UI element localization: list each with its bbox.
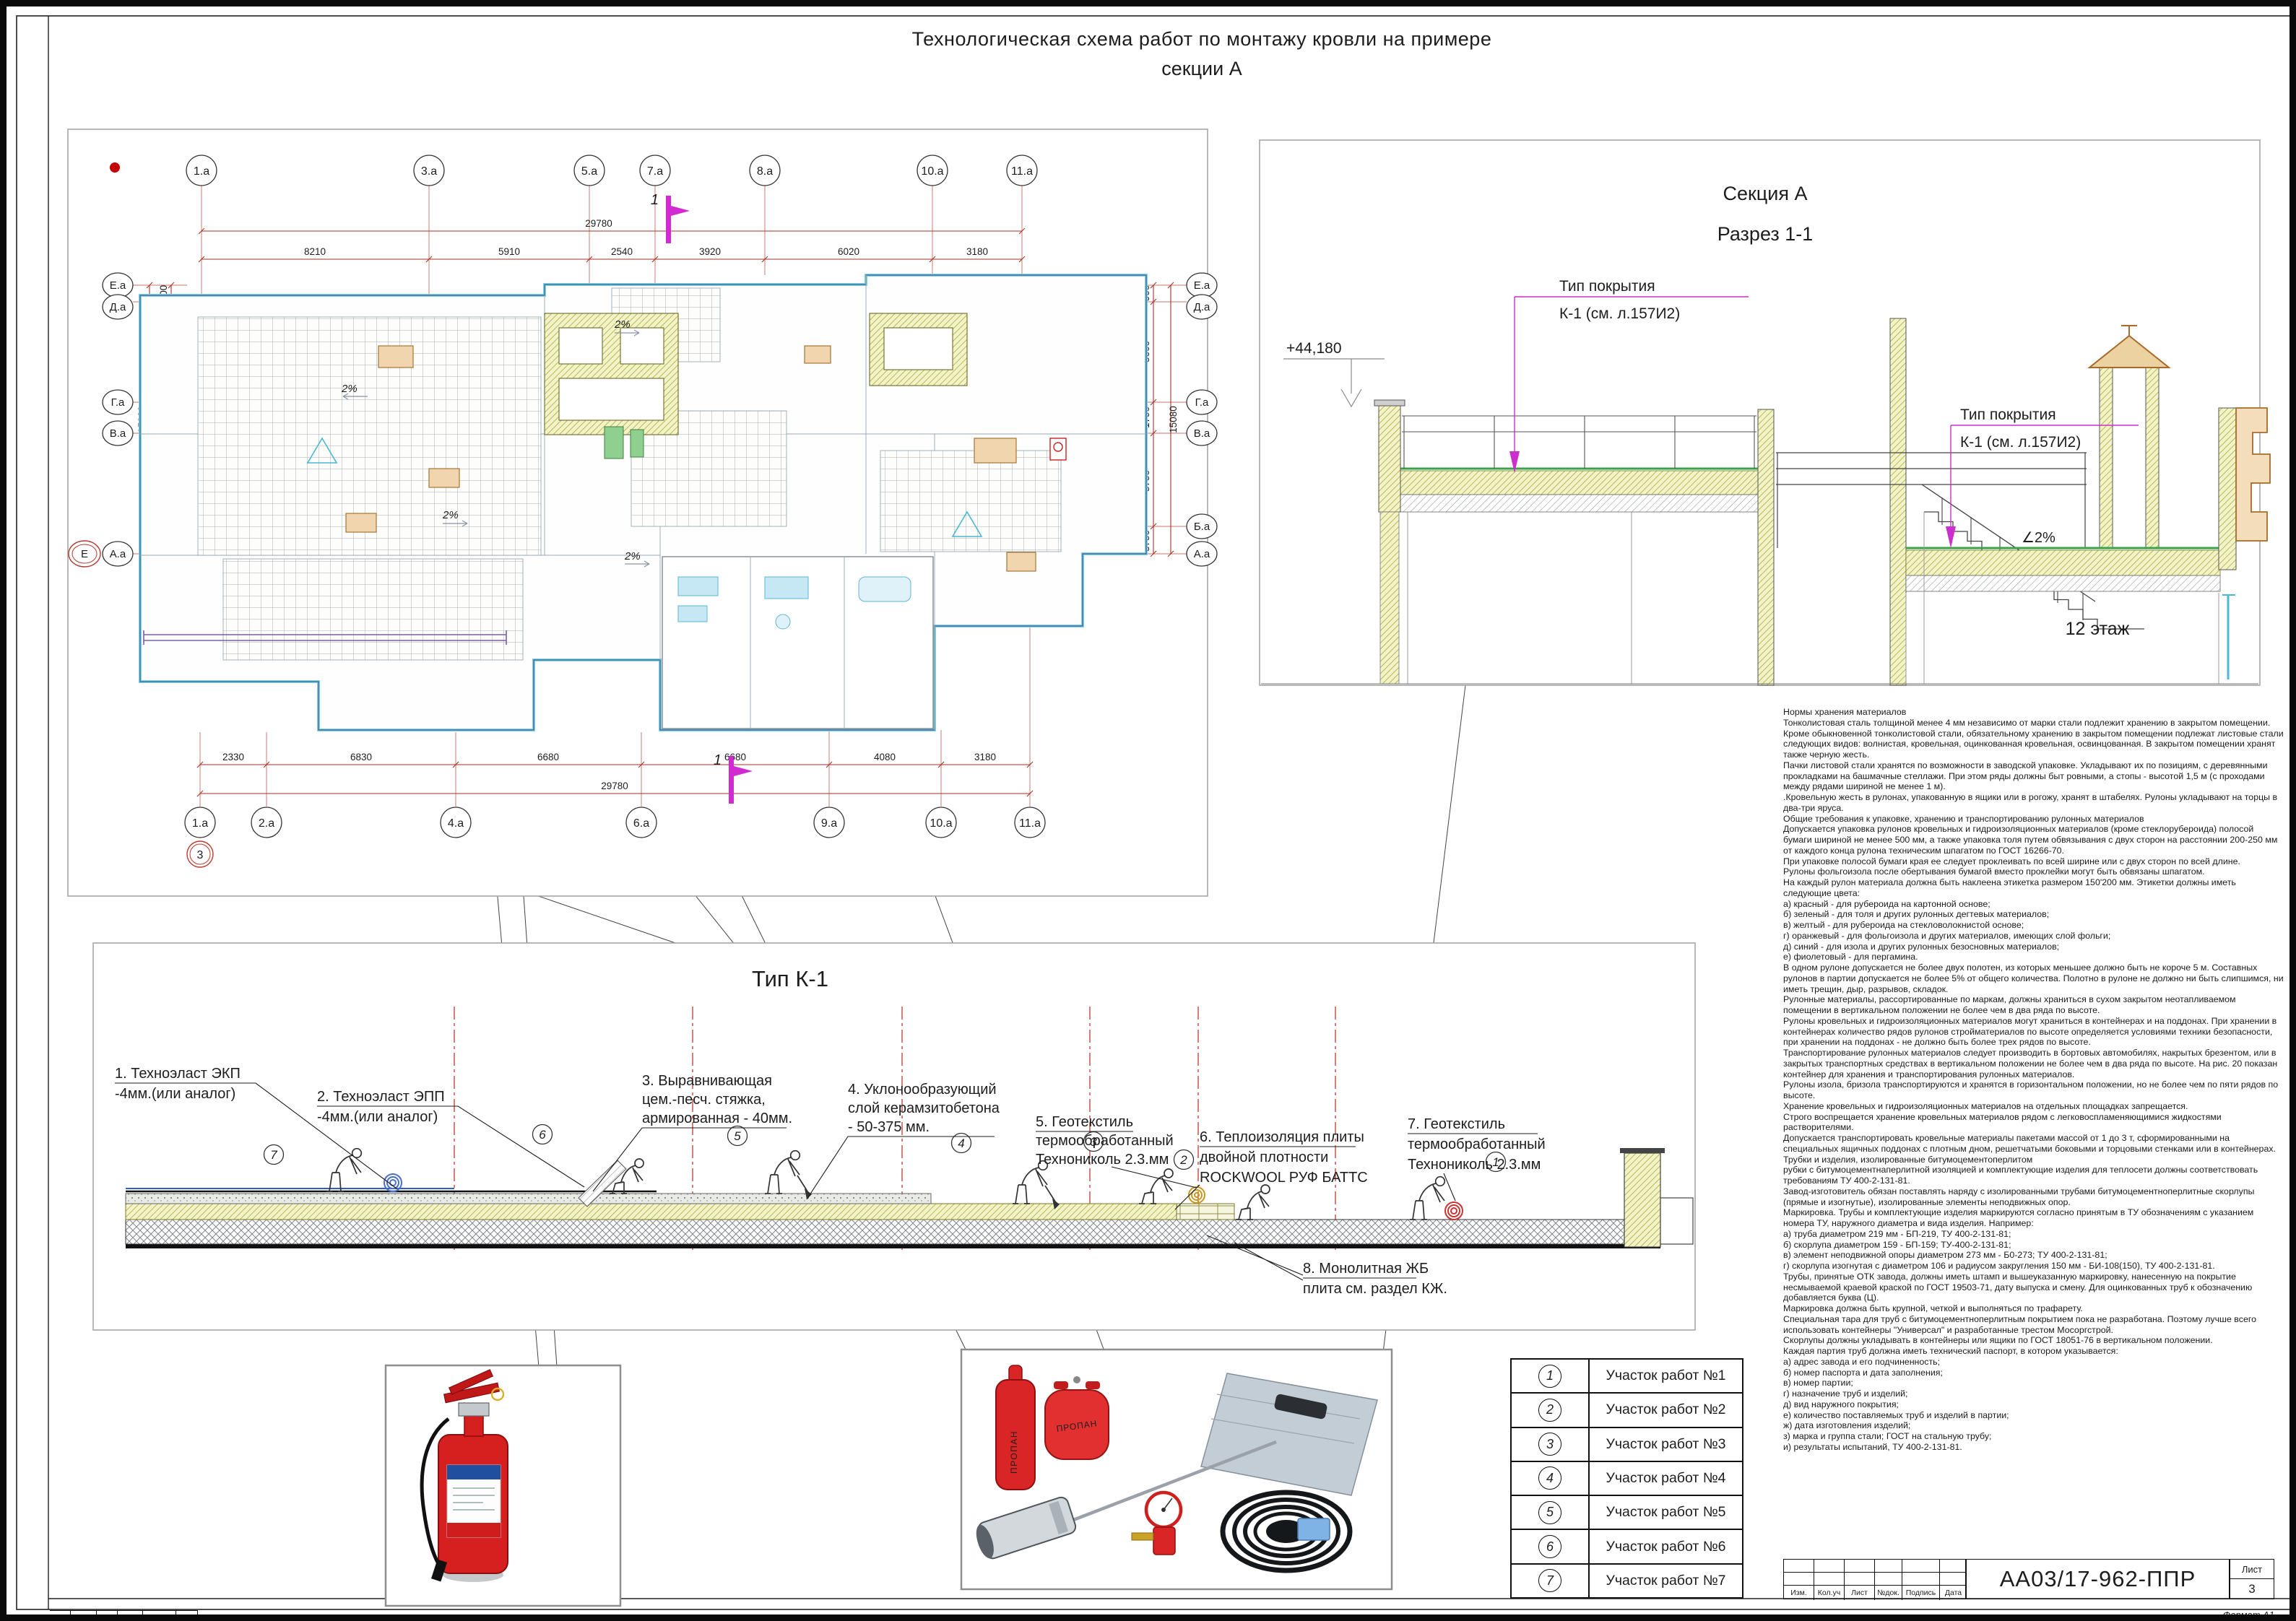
floor-label: 12 этаж xyxy=(2066,619,2130,639)
bath-fixture xyxy=(765,577,808,599)
toilet-fixture xyxy=(776,614,790,629)
section-slope-label: ∠2% xyxy=(2022,530,2055,546)
badge-label: 6 xyxy=(539,1128,546,1142)
axis-label: В.а xyxy=(110,427,126,440)
worksite-number: 6 xyxy=(1538,1535,1561,1558)
label-line: 5. Геотекстиль xyxy=(1036,1114,1133,1130)
section-subtitle: Разрез 1-1 xyxy=(1717,223,1814,245)
worksite-number: 5 xyxy=(1538,1501,1561,1524)
table-row: 3Участок работ №3 xyxy=(1512,1428,1742,1462)
dim: 6680 xyxy=(537,752,559,762)
stamp-col-header: Дата xyxy=(1940,1586,1967,1600)
slope-label: 2% xyxy=(614,318,631,331)
label-line: Технониколь 2.3.мм xyxy=(1036,1152,1169,1168)
label-line: 7. Геотекстиль xyxy=(1408,1116,1505,1132)
axis-bubble: 10.а xyxy=(917,155,948,186)
fire-symbol xyxy=(1050,438,1066,460)
axis-bubble: Г.а xyxy=(103,390,133,414)
layer-insulation xyxy=(126,1204,1177,1220)
section-mark-label: 1 xyxy=(714,752,722,768)
axis-bubble: 7.а xyxy=(640,155,670,186)
worksite-number: 2 xyxy=(1538,1399,1561,1422)
label-line: 3. Выравнивающая xyxy=(642,1073,772,1089)
wall xyxy=(1380,512,1399,684)
axis-bubble: 8.а xyxy=(750,155,780,186)
axis-bubble: 10.а xyxy=(926,807,956,838)
label-line: слой керамзитобетона xyxy=(848,1100,1000,1116)
worksite-label: Участок работ №1 xyxy=(1590,1360,1742,1392)
axis-label: Д.а xyxy=(1194,301,1210,313)
label-line: 4. Уклонообразующий xyxy=(848,1082,997,1098)
dim: 5910 xyxy=(498,246,520,257)
axis-label: Е.а xyxy=(1194,279,1210,292)
axis-label: Д.а xyxy=(110,301,126,313)
bath-fixture xyxy=(678,606,707,622)
stamp-col-header: Подпись xyxy=(1902,1586,1940,1600)
coating-label: К-1 (см. л.157И2) xyxy=(1559,305,1680,322)
dim: 4080 xyxy=(874,752,896,762)
table-row: 2Участок работ №2 xyxy=(1512,1394,1742,1427)
table-row: 4Участок работ №4 xyxy=(1512,1462,1742,1496)
axis-label: Б.а xyxy=(1194,521,1210,533)
k1-title: Тип К-1 xyxy=(752,966,828,991)
axis-bubble: Е.а xyxy=(103,273,133,297)
table-row: 5Участок работ №5 xyxy=(1512,1496,1742,1530)
roof-plan: 8210 5910 2540 3920 6020 3180 29780 2330… xyxy=(68,129,1217,896)
dim: 3180 xyxy=(974,752,996,762)
axis-label: 3.а xyxy=(421,165,437,178)
stamp-col-header: Лист xyxy=(1845,1586,1875,1600)
label-line: цем.-песч. стяжка, xyxy=(642,1092,766,1108)
badge-label: 4 xyxy=(958,1137,964,1150)
axis-label: 2.а xyxy=(259,817,274,830)
label-line: термообработанный xyxy=(1408,1137,1546,1152)
table-row: 1Участок работ №1 xyxy=(1512,1360,1742,1394)
dim: 2330 xyxy=(222,752,244,762)
dim: 2540 xyxy=(611,246,633,257)
label-line: -4мм.(или аналог) xyxy=(115,1086,235,1102)
page-title-line1: Технологическая схема работ по монтажу к… xyxy=(830,28,1574,51)
label-line: -4мм.(или аналог) xyxy=(317,1109,438,1125)
dim-total: 15080 xyxy=(1168,406,1179,433)
sheet-number: 3 xyxy=(2230,1579,2274,1599)
dim-total: 29780 xyxy=(585,218,612,229)
section-title: Секция А xyxy=(1723,183,1807,204)
footer-col: Лист xyxy=(97,1611,118,1621)
label-line: двойной плотности xyxy=(1200,1150,1328,1165)
axis-label: 1.а xyxy=(192,817,208,830)
footer-col: Изм. xyxy=(50,1611,71,1621)
worksite-label: Участок работ №6 xyxy=(1590,1530,1742,1563)
axis-label: Е.а xyxy=(110,279,126,292)
format-label: Формат А1 xyxy=(2173,1609,2274,1620)
label-line: плита см. раздел КЖ. xyxy=(1303,1281,1447,1297)
propane-label: ПРОПАН xyxy=(1009,1430,1019,1474)
footer-col: Дата xyxy=(176,1611,198,1621)
title-block: Изм. Кол.уч Лист №док. Подпись Дата АА03… xyxy=(1783,1559,2274,1599)
axis-bubble-red: Е xyxy=(69,541,100,567)
sheet-number-cell: Лист 3 xyxy=(2230,1559,2274,1599)
label-line: ROCKWOOL РУФ БАТТС xyxy=(1200,1170,1368,1186)
coating-label: Тип покрытия xyxy=(1960,407,2056,423)
bath-fixture xyxy=(678,577,718,596)
axis-bubble: 1.а xyxy=(186,155,217,186)
badge: 2 xyxy=(1174,1150,1194,1170)
footer-col: Колич xyxy=(71,1611,96,1621)
tub-fixture xyxy=(859,577,911,601)
worksite-label: Участок работ №7 xyxy=(1590,1565,1742,1597)
slope-label: 2% xyxy=(341,383,358,395)
axis-label: Г.а xyxy=(1195,396,1209,409)
dim: 3920 xyxy=(699,246,721,257)
badge: 7 xyxy=(264,1145,284,1165)
dim-total: 29780 xyxy=(601,781,628,791)
axis-bubble: 11.а xyxy=(1015,807,1045,838)
room-block xyxy=(662,557,933,729)
axis-label: А.а xyxy=(1194,548,1210,560)
dim: 6830 xyxy=(350,752,372,762)
axis-bubble: В.а xyxy=(1187,421,1217,446)
dim: 8210 xyxy=(304,246,326,257)
stamp-col-header: №док. xyxy=(1875,1586,1902,1600)
layer-slab xyxy=(126,1220,1660,1244)
dim: 6020 xyxy=(838,246,859,257)
section-view: Секция А Разрез 1-1 +44,180 Тип покры xyxy=(1260,140,2270,685)
axis-label: 10.а xyxy=(921,165,943,178)
axis-bubble: В.а xyxy=(103,421,133,446)
worksite-number: 3 xyxy=(1538,1433,1561,1456)
axis-bubble: 11.а xyxy=(1007,155,1037,186)
axis-label: 8.а xyxy=(757,165,773,178)
section-mark-label: 1 xyxy=(651,192,659,208)
axis-label: 6.а xyxy=(633,817,649,830)
footer-col: №док xyxy=(118,1611,142,1621)
worksite-label: Участок работ №4 xyxy=(1590,1462,1742,1495)
propane-cylinder-tall: ПРОПАН xyxy=(996,1365,1035,1490)
axis-label: 11.а xyxy=(1019,817,1041,830)
label-line: Технониколь 2.3.мм xyxy=(1408,1157,1541,1173)
table-row: 6Участок работ №6 xyxy=(1512,1530,1742,1564)
parapet xyxy=(1379,405,1400,512)
torch-kit-photo: ПРОПАН ПРОПАН xyxy=(961,1350,1392,1589)
slope-label: 2% xyxy=(624,550,641,562)
axis-bubble: Д.а xyxy=(1187,295,1217,319)
dim: 3180 xyxy=(966,246,988,257)
layer-rockwool-boards xyxy=(1177,1204,1234,1220)
title-block-grid: Изм. Кол.уч Лист №док. Подпись Дата xyxy=(1783,1559,1966,1599)
worksite-number: 1 xyxy=(1538,1365,1561,1388)
elevation-label: +44,180 xyxy=(1286,340,1342,357)
page-title: Технологическая схема работ по монтажу к… xyxy=(830,28,1574,80)
axis-label: В.а xyxy=(1194,427,1210,440)
axis-label: Г.а xyxy=(111,396,125,409)
worksite-label: Участок работ №3 xyxy=(1590,1428,1742,1461)
badge-label: 5 xyxy=(734,1129,741,1143)
axis-bubble: 3.а xyxy=(414,155,444,186)
page-title-line2: секции А xyxy=(830,58,1574,80)
fire-extinguisher-photo xyxy=(386,1365,620,1606)
label-line: армированная - 40мм. xyxy=(642,1111,792,1126)
label-line: - 50-375 мм. xyxy=(848,1119,930,1135)
label-line: 8. Монолитная ЖБ xyxy=(1303,1261,1429,1277)
axis-bubble: 6.а xyxy=(626,807,657,838)
axis-bubble: Г.а xyxy=(1187,390,1217,414)
axis-bubble: А.а xyxy=(103,542,133,566)
axis-bubble: 2.а xyxy=(251,807,282,838)
label-line: 6. Теплоизоляция плиты xyxy=(1200,1129,1364,1145)
axis-bubble: 5.а xyxy=(574,155,605,186)
sheet-label: Лист xyxy=(2230,1560,2274,1579)
axis-label: 10.а xyxy=(930,817,952,830)
axis-bubble: 1.а xyxy=(185,807,215,838)
axis-label: 4.а xyxy=(448,817,464,830)
axis-bubble: Д.а xyxy=(103,295,133,319)
axis-label: Е xyxy=(81,548,88,560)
k1-detail: Тип К-1 xyxy=(93,943,1695,1330)
worksite-label: Участок работ №5 xyxy=(1590,1496,1742,1529)
badge-label: 7 xyxy=(270,1148,277,1162)
axis-bubble: Е.а xyxy=(1187,273,1217,297)
label-line: термообработанный xyxy=(1036,1133,1174,1149)
worksite-number: 4 xyxy=(1538,1466,1561,1490)
badge-label: 2 xyxy=(1179,1153,1187,1167)
drawing-sheet: 8210 5910 2540 3920 6020 3180 29780 2330… xyxy=(0,0,2296,1621)
dim: 6680 xyxy=(724,752,746,762)
sheet-ref-label: 3 xyxy=(197,849,204,861)
stamp-col-header: Кол.уч xyxy=(1814,1586,1845,1600)
extinguisher-valve xyxy=(459,1403,489,1416)
axis-label: 9.а xyxy=(821,817,837,830)
axis-label: 1.а xyxy=(194,165,209,178)
coating-label: Тип покрытия xyxy=(1559,278,1655,295)
axis-bubble: А.а xyxy=(1187,542,1217,566)
worksite-label: Участок работ №2 xyxy=(1590,1394,1742,1426)
table-row: 7Участок работ №7 xyxy=(1512,1565,1742,1597)
worksite-number: 7 xyxy=(1538,1569,1561,1592)
coil-label xyxy=(1298,1518,1330,1540)
lower-roof xyxy=(1906,548,2220,591)
axis-label: 7.а xyxy=(647,165,663,178)
storage-norms-text: Нормы хранения материалов Тонколистовая … xyxy=(1783,707,2284,1453)
slope-label: 2% xyxy=(442,509,459,521)
coating-label: К-1 (см. л.157И2) xyxy=(1960,434,2081,451)
axis-label: 5.а xyxy=(581,165,597,178)
footer-col: Подпись xyxy=(143,1611,177,1621)
footer-columns: Изм. Колич Лист №док Подпись Дата xyxy=(50,1610,198,1621)
document-number: АА03/17-962-ППР xyxy=(1966,1559,2230,1599)
axis-bubble: 9.а xyxy=(814,807,844,838)
label-line: 1. Техноэласт ЭКП xyxy=(115,1066,241,1082)
label-line: 2. Техноэласт ЭПП xyxy=(317,1089,445,1105)
stamp-col-header: Изм. xyxy=(1784,1586,1814,1600)
badge: 5 xyxy=(728,1126,748,1146)
worksites-table: 1Участок работ №1 2Участок работ №2 3Уча… xyxy=(1510,1358,1743,1599)
axis-bubble: Б.а xyxy=(1187,514,1217,539)
work-start-point xyxy=(110,162,120,173)
axis-label: 11.а xyxy=(1011,165,1033,178)
badge: 6 xyxy=(533,1125,553,1144)
axis-bubble: 4.а xyxy=(441,807,471,838)
axis-label: А.а xyxy=(110,548,126,560)
